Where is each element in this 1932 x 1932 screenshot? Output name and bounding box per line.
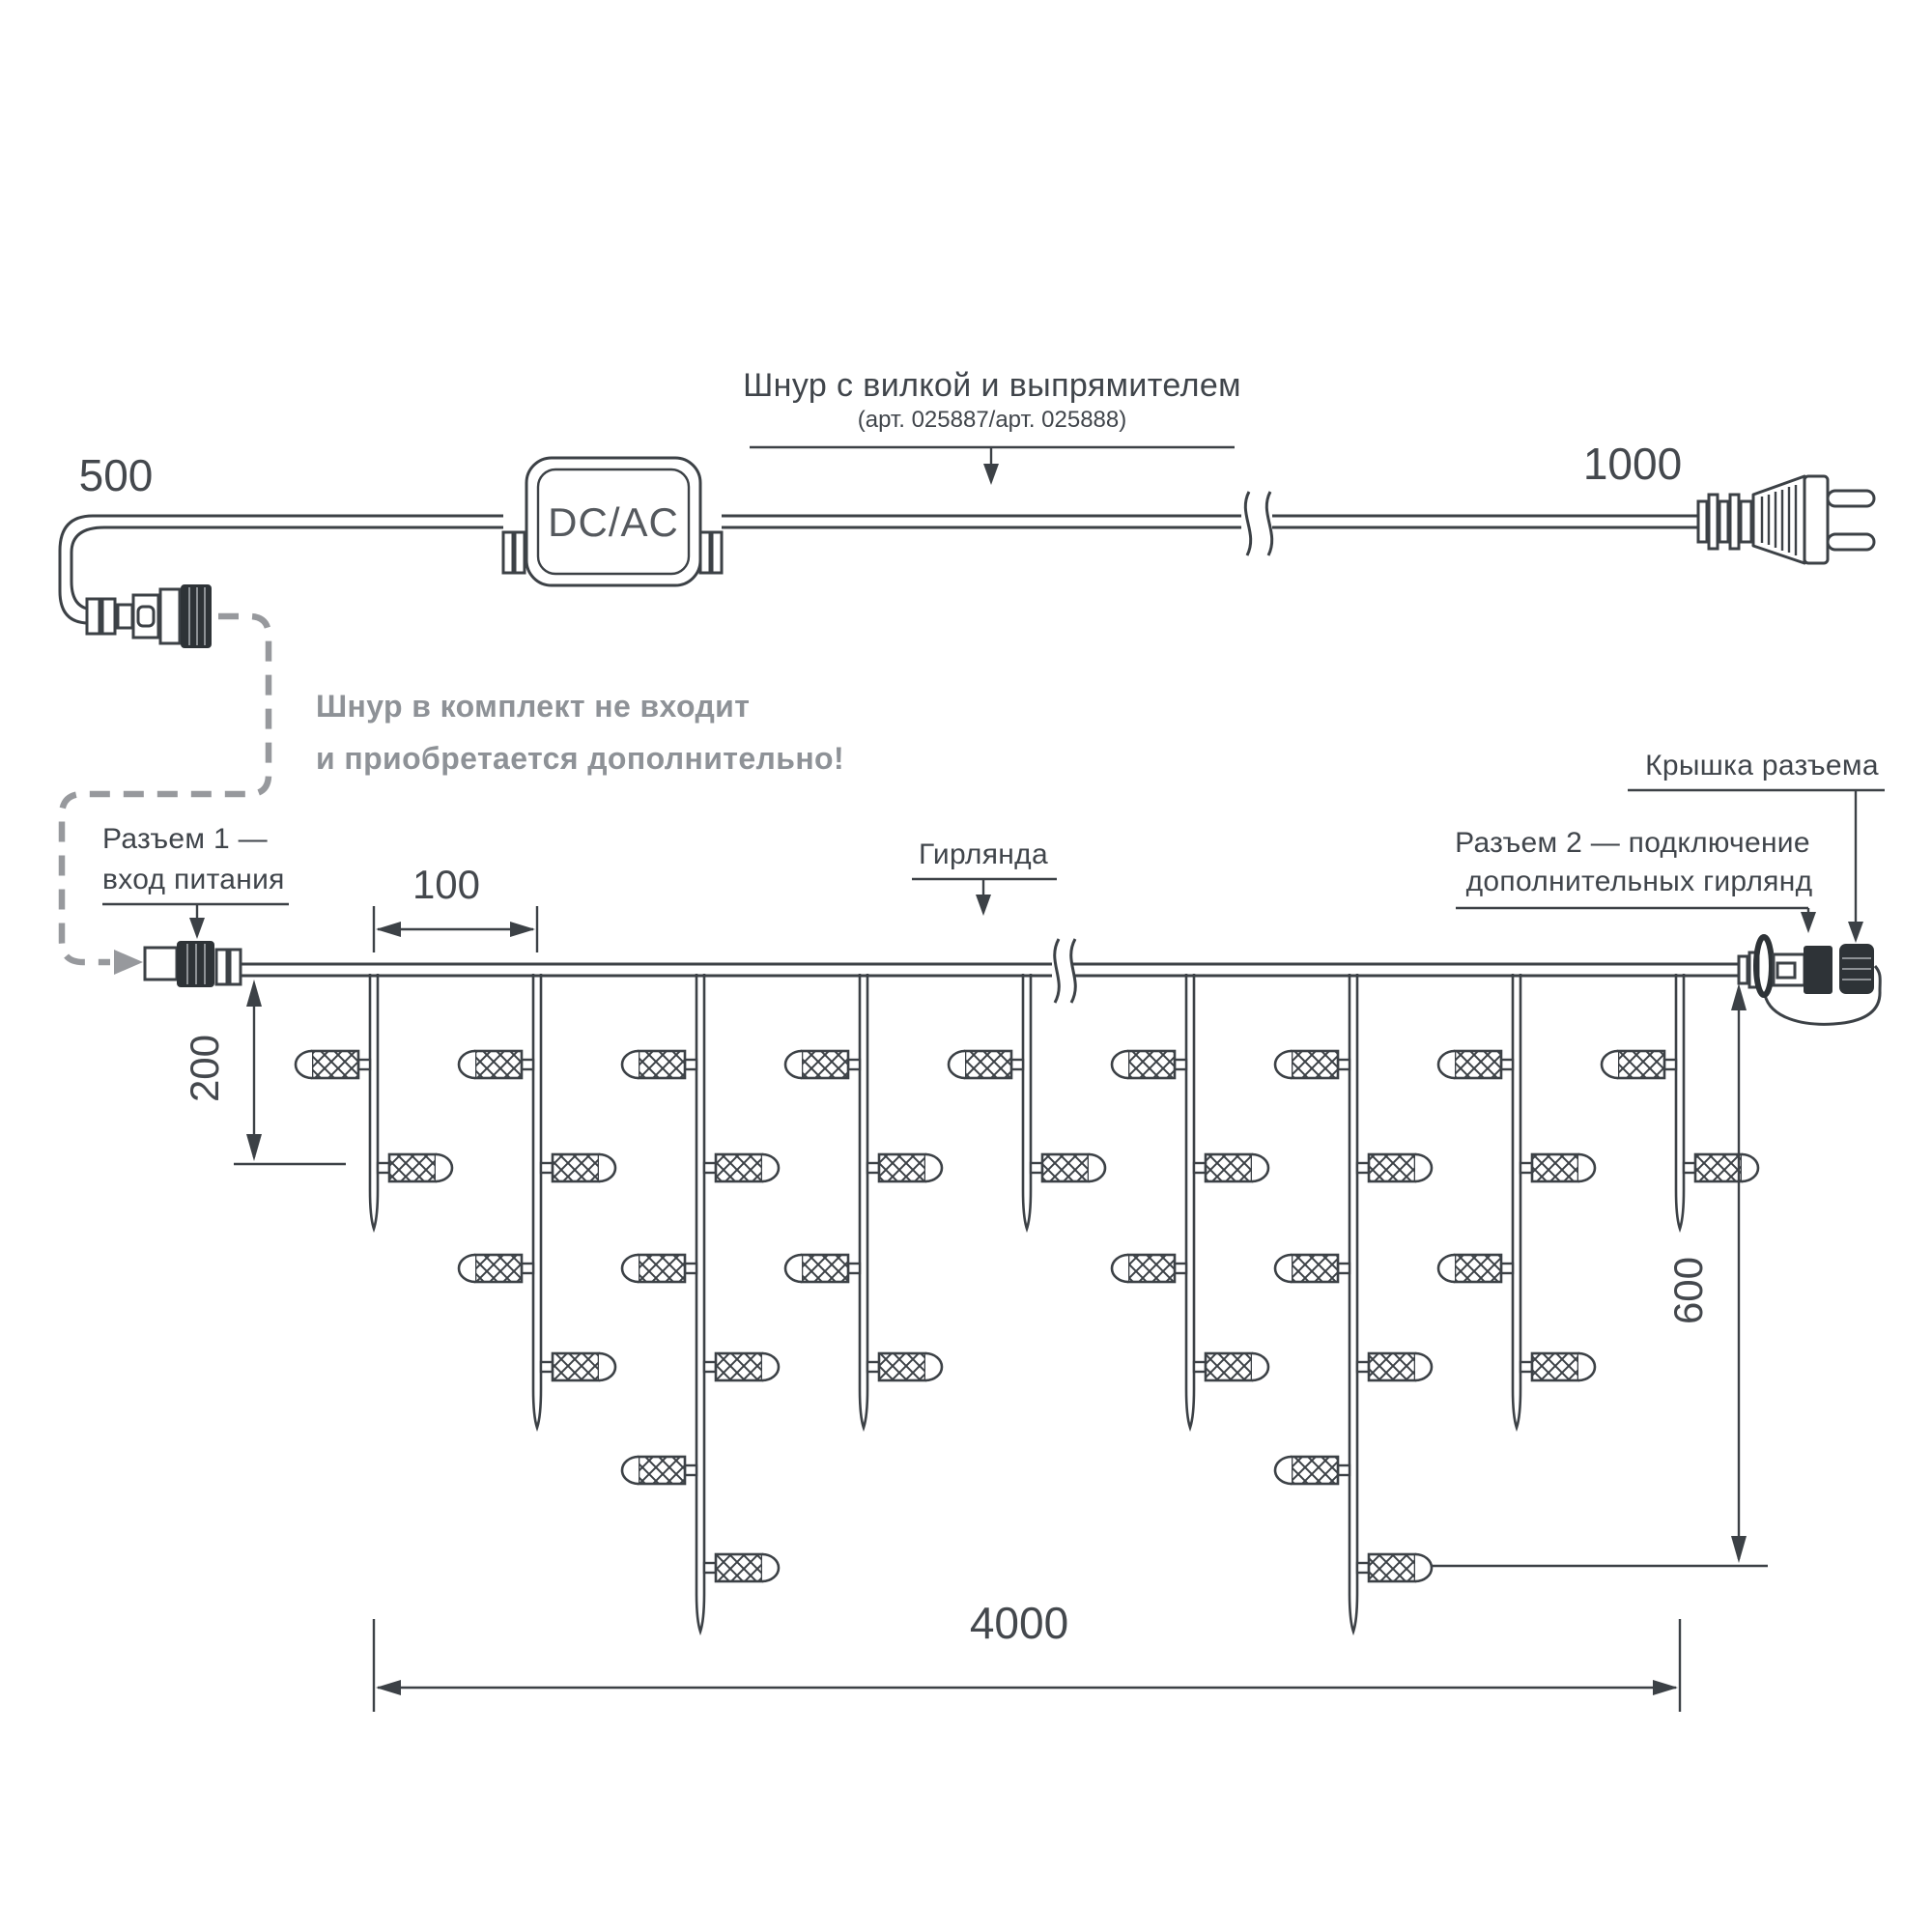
connector1-label-line2: вход питания <box>102 864 285 895</box>
bulb <box>1357 1154 1432 1181</box>
diagram-canvas: Шнур с вилкой и выпрямителем (арт. 02588… <box>0 0 1932 1932</box>
bulb <box>1275 1457 1350 1484</box>
garland-connector1 <box>145 942 241 986</box>
cable-break-icon <box>1245 492 1271 555</box>
cap-tether-ring <box>1756 937 1772 995</box>
dim-600: 600 <box>1665 1257 1711 1324</box>
bulb <box>1357 1353 1432 1380</box>
bulb <box>785 1255 860 1282</box>
icicle-drops <box>296 974 1758 1632</box>
dim-100: 100 <box>412 862 480 907</box>
bulb <box>704 1554 779 1581</box>
bulb <box>1275 1051 1350 1078</box>
bulb <box>622 1457 696 1484</box>
dc-ac-label: DC/AC <box>548 499 679 545</box>
bulb <box>704 1154 779 1181</box>
bulb <box>541 1353 615 1380</box>
garland-label: Гирлянда <box>919 838 1048 870</box>
icicle-drop <box>296 974 452 1229</box>
cord-output-connector <box>87 585 211 647</box>
bulb <box>1520 1353 1595 1380</box>
garland-main-wire <box>241 964 1739 976</box>
dim-1000: 1000 <box>1583 439 1682 489</box>
dim-500: 500 <box>79 450 154 500</box>
bulb <box>1438 1051 1513 1078</box>
bulb <box>867 1353 942 1380</box>
connector2-label-line2: дополнительных гирлянд <box>1466 866 1813 897</box>
icicle-drop <box>459 974 615 1428</box>
power-cord-assembly: Шнур с вилкой и выпрямителем (арт. 02588… <box>60 367 1874 776</box>
bulb <box>704 1353 779 1380</box>
bulb <box>867 1154 942 1181</box>
icicle-drop <box>1602 974 1758 1229</box>
icicle-drop <box>622 974 779 1632</box>
bulb <box>949 1051 1023 1078</box>
bulb <box>1194 1353 1268 1380</box>
cord-subtitle: (арт. 025887/арт. 025888) <box>858 407 1127 433</box>
icicle-drop <box>785 974 942 1428</box>
diagram-page: { "colors": { "ink": "#3c4146", "gray_no… <box>0 0 1932 1932</box>
bulb <box>459 1051 533 1078</box>
dc-ac-converter: DC/AC <box>503 458 722 585</box>
bulb <box>785 1051 860 1078</box>
bulb <box>378 1154 452 1181</box>
bulb <box>1357 1554 1432 1581</box>
connector2-label-line1: Разъем 2 — подключение <box>1455 827 1810 859</box>
icicle-drop <box>1438 974 1595 1428</box>
garland-arrow-icon <box>976 895 991 916</box>
cord-title-arrow-icon <box>983 464 999 485</box>
icicle-drop <box>1275 974 1432 1632</box>
dashed-connection-route <box>62 616 269 975</box>
bulb <box>1031 1154 1105 1181</box>
bulb <box>1602 1051 1676 1078</box>
garland-assembly: Разъем 1 — вход питания Гирлянда Разъем … <box>102 750 1885 1712</box>
icicle-drop <box>1112 974 1268 1428</box>
garland-connector2 <box>1739 937 1880 1024</box>
dim-200: 200 <box>182 1035 227 1102</box>
cable-right-segment1 <box>722 516 1241 527</box>
garland-break-icon <box>1055 939 1076 1003</box>
bulb <box>1438 1255 1513 1282</box>
connector1-label-line1: Разъем 1 — <box>102 823 268 855</box>
cable-right-segment2 <box>1272 516 1698 527</box>
bulb <box>1194 1154 1268 1181</box>
bulb <box>459 1255 533 1282</box>
mains-plug <box>1698 476 1874 563</box>
bulb <box>622 1255 696 1282</box>
bulb <box>1112 1051 1186 1078</box>
cap-label: Крышка разъема <box>1645 750 1879 781</box>
bulb <box>622 1051 696 1078</box>
bulb <box>541 1154 615 1181</box>
dashed-route-arrow-icon <box>114 950 143 975</box>
note-line2: и приобретается дополнительно! <box>316 741 844 776</box>
cap-arrow-icon <box>1848 922 1863 943</box>
note-line1: Шнур в комплект не входит <box>316 689 750 724</box>
icicle-drop <box>949 974 1105 1229</box>
bulb <box>1112 1255 1186 1282</box>
dim-4000-group: 4000 <box>374 1598 1680 1712</box>
bulb <box>1520 1154 1595 1181</box>
dim-100-group: 100 <box>374 862 537 952</box>
connector1-arrow-icon <box>189 918 205 939</box>
bulb <box>1275 1255 1350 1282</box>
cord-title: Шнур с вилкой и выпрямителем <box>743 367 1241 404</box>
dim-4000: 4000 <box>970 1598 1068 1648</box>
bulb <box>1684 1154 1758 1181</box>
connector2-arrow-icon <box>1801 912 1816 933</box>
bulb <box>296 1051 370 1078</box>
